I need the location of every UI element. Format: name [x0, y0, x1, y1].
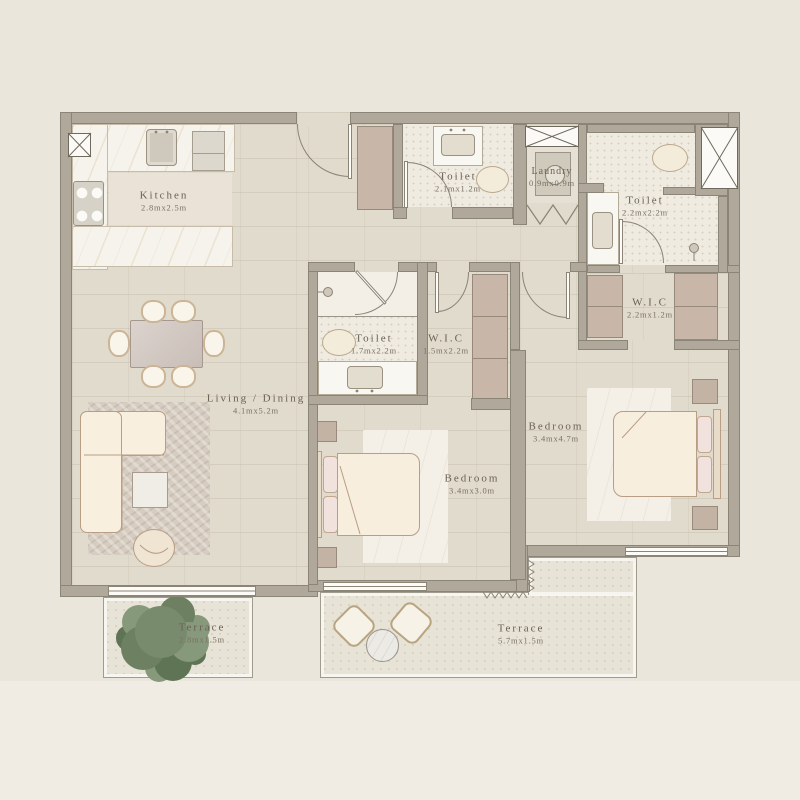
bedroom-master-bed	[613, 411, 697, 497]
wall	[674, 340, 740, 350]
kitchen-island	[72, 226, 233, 267]
room-label-terrace-left: Terrace 2.8mx1.5m	[179, 622, 226, 645]
kitchen-sink	[146, 129, 177, 166]
window-bedroom-master	[625, 547, 728, 556]
toilet-mid-basin	[347, 366, 383, 389]
toilet-master-wc	[652, 144, 688, 172]
bedroom-master-door-leaf	[566, 272, 570, 319]
wall	[587, 124, 695, 133]
wic-master-wardrobe-left	[587, 275, 623, 338]
wic-mid-door-leaf	[435, 272, 439, 313]
toilet-entry-door-leaf	[404, 161, 408, 208]
room-dims: 2.2mx1.2m	[627, 310, 673, 320]
bedroom-master-pillow	[697, 416, 712, 453]
floor-plan: Kitchen 2.8mx2.5m Living / Dining 4.1mx5…	[0, 0, 800, 800]
wall	[578, 124, 587, 350]
window-bedroom-mid	[323, 582, 427, 591]
dining-chair	[171, 300, 196, 323]
room-name: Toilet	[351, 333, 397, 345]
room-dims: 5.7mx1.5m	[498, 636, 545, 646]
wall	[587, 265, 620, 273]
room-name: Laundry	[529, 166, 575, 177]
room-name: Terrace	[179, 622, 226, 634]
dining-table	[130, 320, 203, 368]
dining-chair	[203, 330, 225, 357]
room-label-living-dining: Living / Dining 4.1mx5.2m	[207, 393, 305, 416]
wall	[510, 262, 520, 350]
toilet-entry-basin	[441, 134, 475, 156]
window-living	[108, 586, 256, 596]
sofa-corner	[83, 414, 119, 454]
room-name: Living / Dining	[207, 393, 305, 405]
room-dims: 0.9mx0.9m	[529, 178, 575, 188]
room-label-kitchen: Kitchen 2.8mx2.5m	[140, 190, 189, 213]
wic-mid-wardrobe	[472, 274, 508, 400]
dining-chair	[108, 330, 130, 357]
room-label-toilet-master: Toilet 2.2mx2.2m	[622, 195, 668, 218]
pouf	[133, 529, 175, 567]
wall	[578, 183, 604, 193]
room-name: Toilet	[622, 195, 668, 207]
wall	[308, 395, 428, 405]
bedroom-master-nightstand	[692, 379, 718, 404]
wall	[393, 124, 403, 219]
wall	[665, 265, 740, 273]
room-dims: 3.4mx3.0m	[445, 486, 500, 496]
room-name: W.I.C	[627, 297, 673, 309]
coffee-table	[132, 472, 168, 508]
room-dims: 4.1mx5.2m	[207, 406, 305, 416]
wall	[60, 112, 72, 597]
room-dims: 1.7mx2.2m	[351, 346, 397, 356]
room-name: Kitchen	[140, 190, 189, 202]
room-name: Bedroom	[529, 421, 584, 433]
service-shaft-icon	[68, 133, 91, 157]
wall	[452, 207, 513, 219]
room-name: W.I.C	[423, 333, 469, 345]
background-band	[0, 681, 800, 800]
dining-chair	[141, 300, 166, 323]
bedroom-master-headboard	[713, 409, 721, 499]
kitchen-appliance	[192, 131, 225, 171]
room-label-bedroom-master: Bedroom 3.4mx4.7m	[529, 421, 584, 444]
bedroom-master-pillow	[697, 456, 712, 493]
dining-chair	[141, 365, 166, 388]
room-dims: 2.1mx1.2m	[435, 184, 481, 194]
terrace-table	[366, 629, 399, 662]
wic-master-wardrobe-right	[674, 273, 718, 340]
bedroom-mid-pillow	[323, 496, 338, 533]
wall	[308, 268, 318, 585]
service-shaft-icon	[525, 126, 579, 147]
wall	[350, 112, 740, 124]
room-name: Toilet	[435, 171, 481, 183]
room-label-toilet-entry: Toilet 2.1mx1.2m	[435, 171, 481, 194]
room-label-wic-mid: W.I.C 1.5mx2.2m	[423, 333, 469, 356]
terrace-right-upper-floor	[528, 557, 637, 595]
room-name: Terrace	[498, 623, 545, 635]
room-label-bedroom-mid: Bedroom 3.4mx3.0m	[445, 473, 500, 496]
room-label-terrace-right: Terrace 5.7mx1.5m	[498, 623, 545, 646]
dining-chair	[171, 365, 196, 388]
bedroom-mid-pillow	[323, 456, 338, 493]
room-label-wic-master: W.I.C 2.2mx1.2m	[627, 297, 673, 320]
service-shaft-icon	[701, 127, 738, 189]
room-dims: 2.8mx1.5m	[179, 635, 226, 645]
wall	[60, 112, 297, 124]
wall	[718, 196, 728, 273]
wall	[578, 340, 628, 350]
stove-cooktop	[73, 181, 104, 226]
toilet-master-door-leaf	[619, 219, 623, 264]
room-dims: 3.4mx4.7m	[529, 434, 584, 444]
room-name: Bedroom	[445, 473, 500, 485]
wall	[510, 350, 526, 580]
entry-closet	[357, 126, 393, 210]
room-dims: 2.8mx2.5m	[140, 203, 189, 213]
wall	[308, 262, 355, 272]
bedroom-mid-bed	[337, 453, 420, 536]
room-label-laundry: Laundry 0.9mx0.9m	[529, 166, 575, 188]
toilet-master-basin	[592, 212, 613, 249]
entry-door-leaf	[348, 124, 352, 179]
room-dims: 2.2mx2.2m	[622, 208, 668, 218]
wall	[570, 262, 587, 272]
room-label-toilet-mid: Toilet 1.7mx2.2m	[351, 333, 397, 356]
wall	[393, 207, 407, 219]
room-dims: 1.5mx2.2m	[423, 346, 469, 356]
bedroom-master-nightstand	[692, 506, 718, 530]
